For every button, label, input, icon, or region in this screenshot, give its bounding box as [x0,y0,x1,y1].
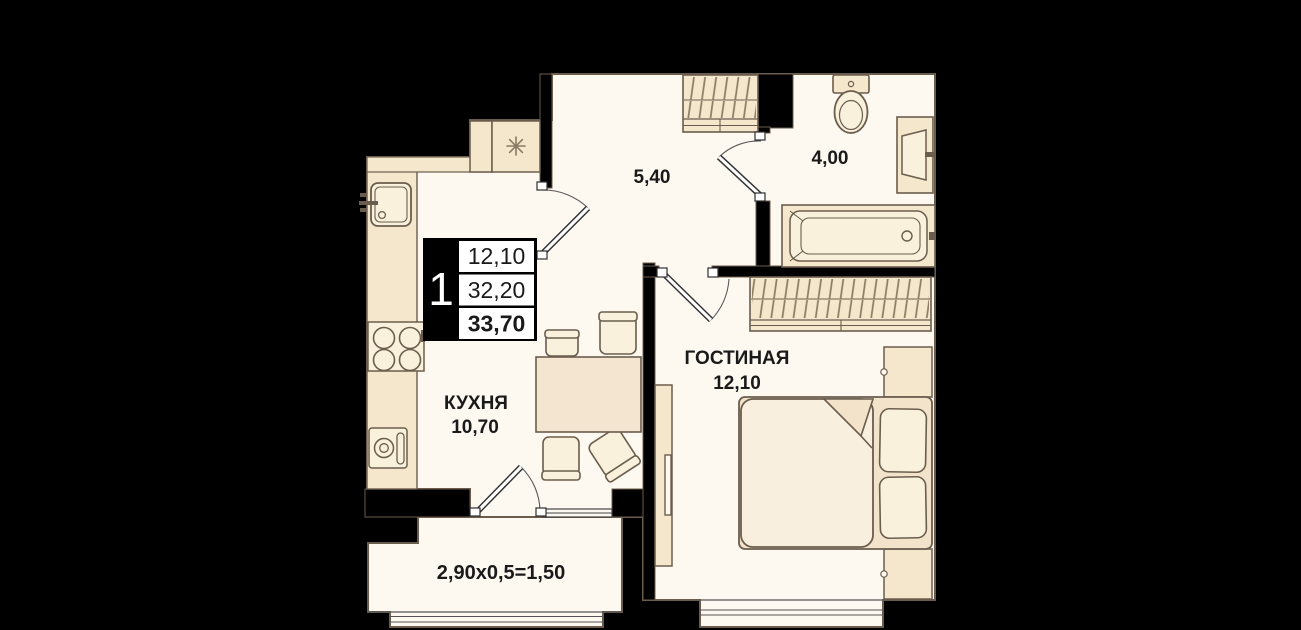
toilet [833,75,869,133]
dining-table [536,357,641,432]
stove [368,322,425,371]
star-icon [507,137,525,155]
bed [739,397,932,549]
tv-icon [665,455,671,515]
kitchen-balcony-window [543,509,612,517]
tv-stand [655,385,672,566]
pillow [879,477,926,539]
balcony-formula-label: 2,90x0,5=1,50 [437,562,565,584]
bathroom-area-label: 4,00 [812,148,849,169]
badge-row: 12,10 [468,243,526,269]
hallway-area-label: 5,40 [634,167,671,188]
faucet-icon [359,201,378,205]
badge-row: 33,70 [468,311,526,337]
chair [542,437,580,480]
kitchen-name-label: КУХНЯ [444,393,508,414]
nightstand [881,549,932,599]
floor-plan: 1 12,10 32,20 33,70 5,40 4,00 КУХНЯ 10,7… [0,0,1301,630]
badge-unit: 1 [428,263,454,315]
area-badge: 1 12,10 32,20 33,70 [423,238,537,341]
living-name-label: ГОСТИНАЯ [685,348,790,369]
closet-cabinet [470,121,492,172]
hallway-wardrobe [683,75,758,132]
faucet-icon [925,152,935,157]
nightstand [881,347,932,397]
washing-machine [369,428,407,468]
bathtub [782,205,935,267]
chair [599,312,637,354]
kitchen-area-label: 10,70 [451,417,499,438]
pillow [879,409,926,473]
living-area-label: 12,10 [713,373,761,394]
bathroom-sink [897,117,935,193]
floor-plan-canvas: 1 12,10 32,20 33,70 5,40 4,00 КУХНЯ 10,7… [0,0,1301,630]
badge-row: 32,20 [468,277,526,303]
living-wardrobe [750,277,931,331]
chair [545,330,579,356]
